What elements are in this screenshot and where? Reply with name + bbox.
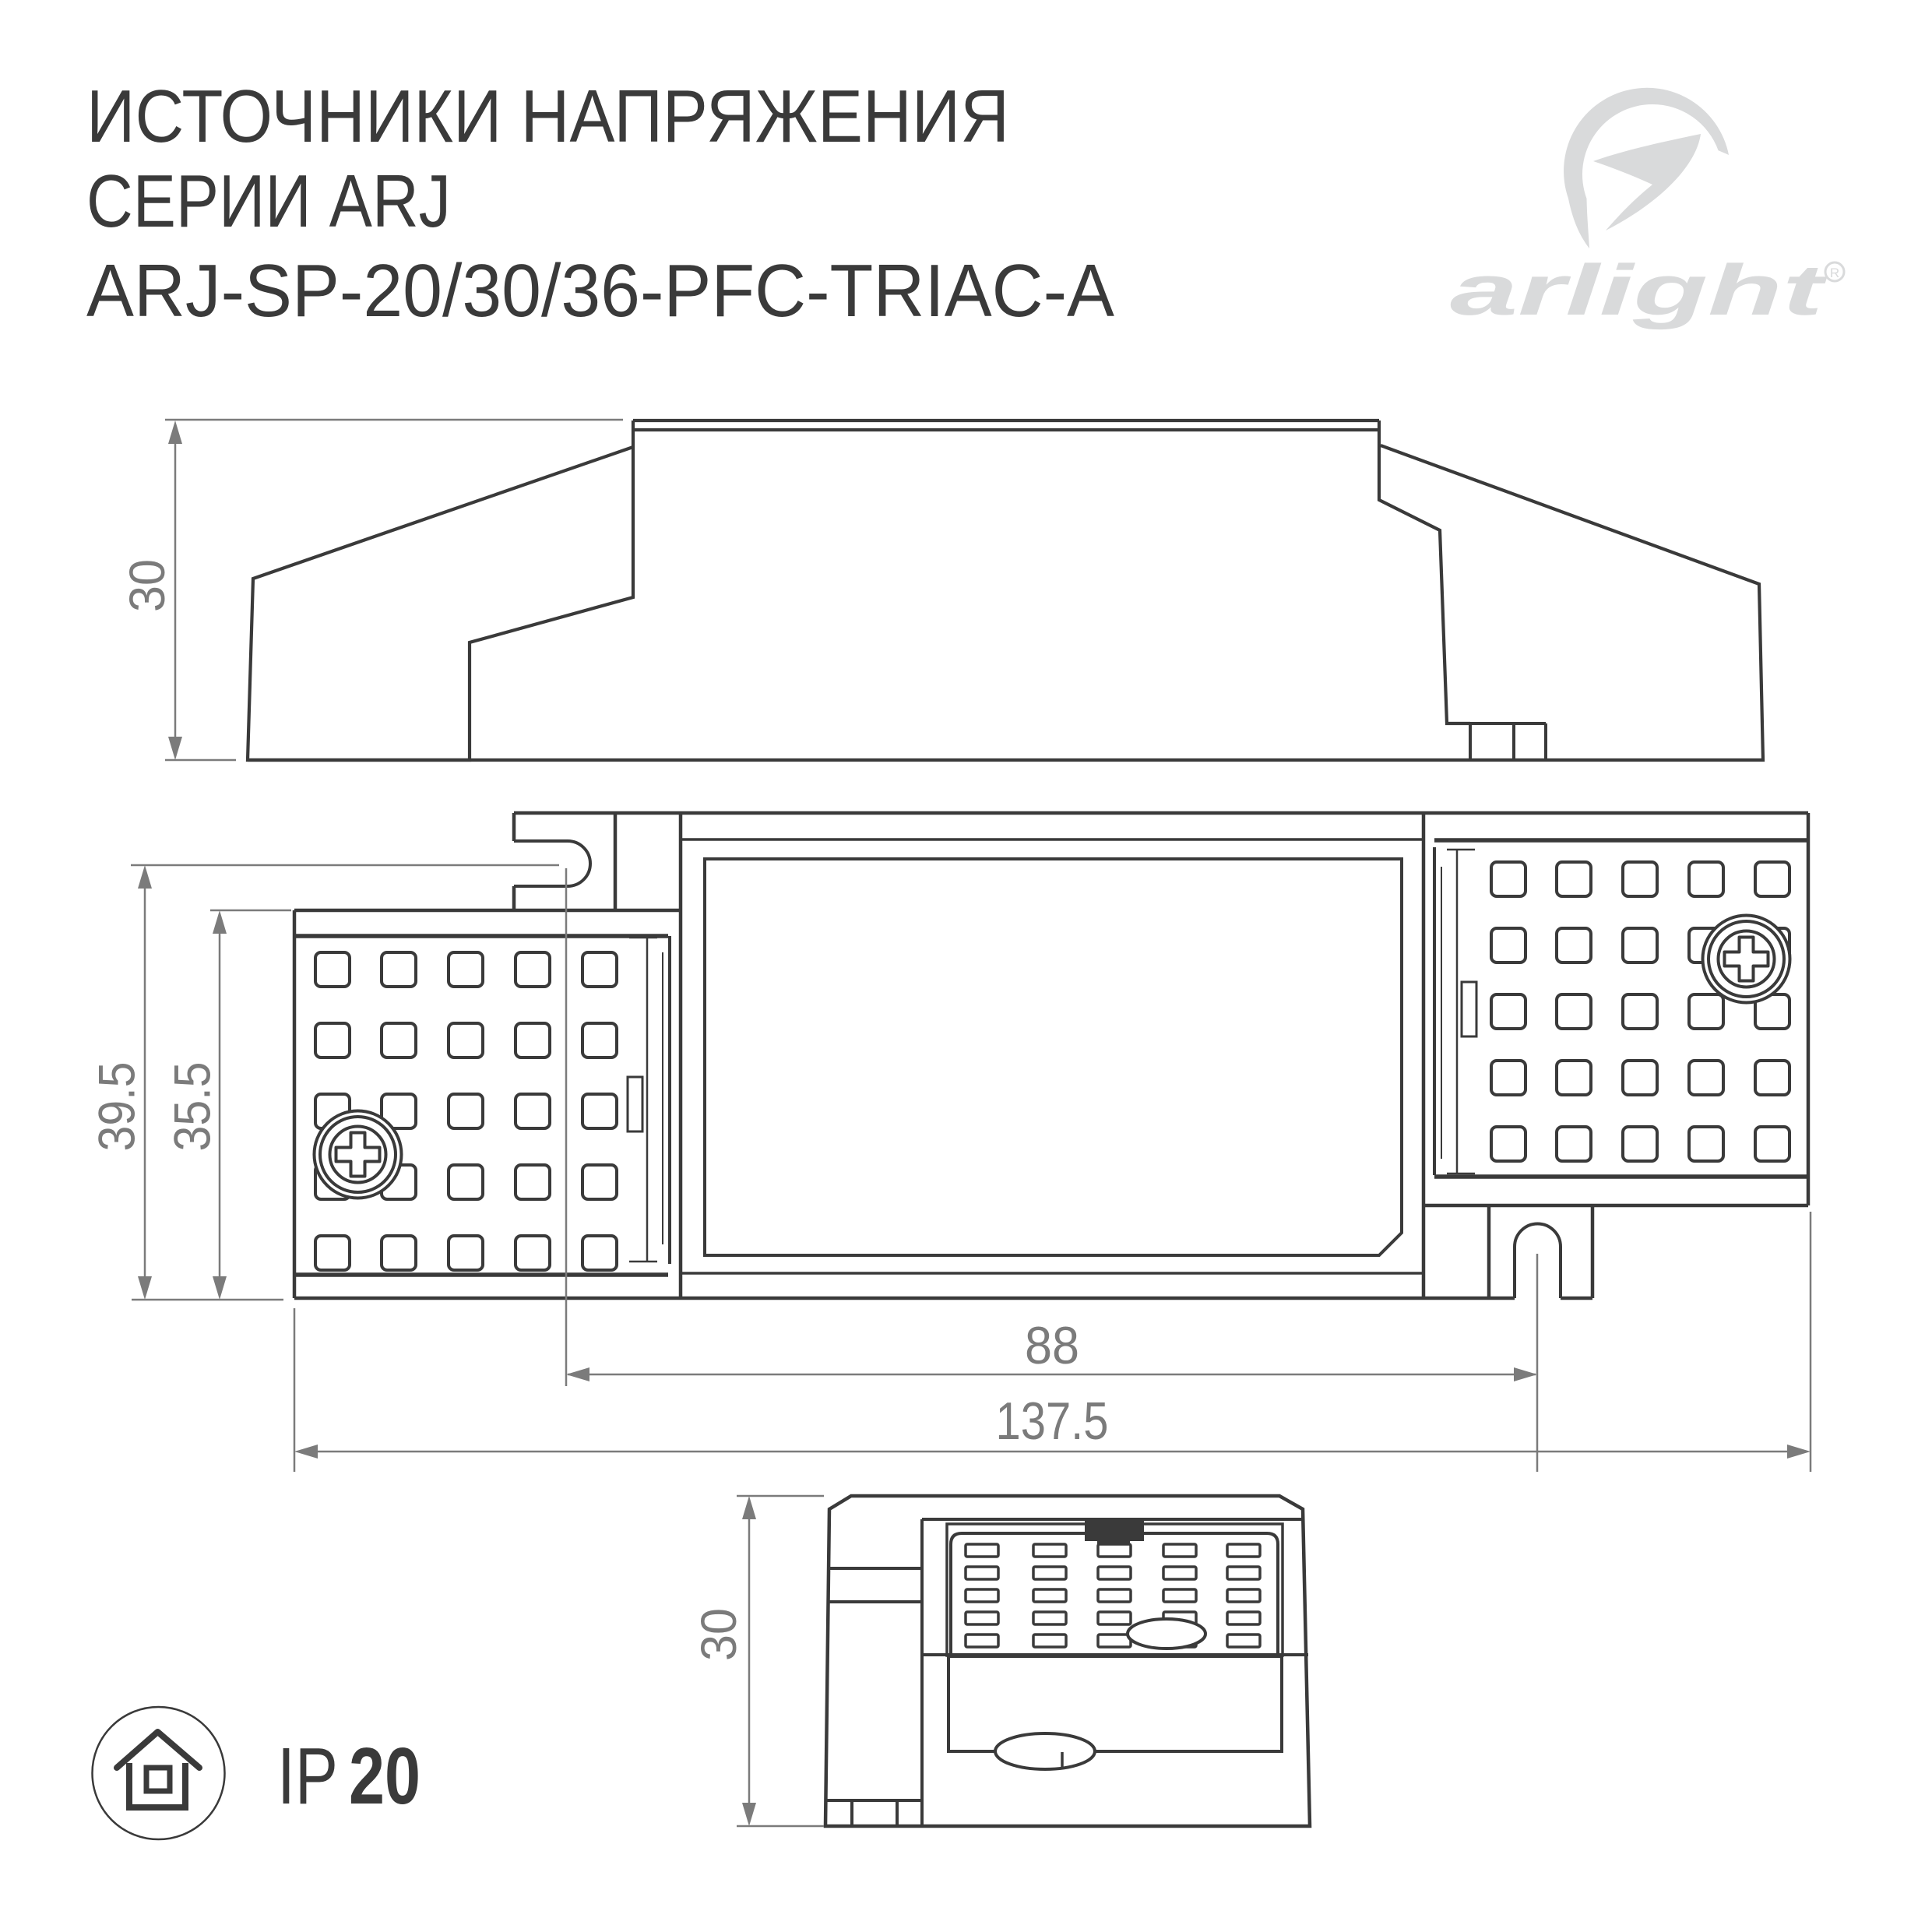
svg-text:СЕРИИ ARJ: СЕРИИ ARJ [86, 160, 451, 243]
svg-text:20: 20 [349, 1731, 421, 1821]
svg-text:137.5: 137.5 [996, 1392, 1109, 1451]
svg-text:88: 88 [1025, 1316, 1079, 1375]
svg-text:35.5: 35.5 [163, 1062, 220, 1152]
svg-text:30: 30 [119, 559, 175, 612]
svg-text:ARJ-SP-20/30/36-PFC-TRIAC-A: ARJ-SP-20/30/36-PFC-TRIAC-A [86, 249, 1114, 333]
svg-text:39.5: 39.5 [87, 1062, 145, 1152]
svg-text:ИСТОЧНИКИ НАПРЯЖЕНИЯ: ИСТОЧНИКИ НАПРЯЖЕНИЯ [86, 75, 1009, 158]
svg-text:IP: IP [277, 1731, 338, 1821]
svg-text:R: R [1830, 266, 1839, 280]
svg-text:arlight: arlight [1450, 251, 1828, 330]
svg-text:30: 30 [691, 1608, 747, 1661]
